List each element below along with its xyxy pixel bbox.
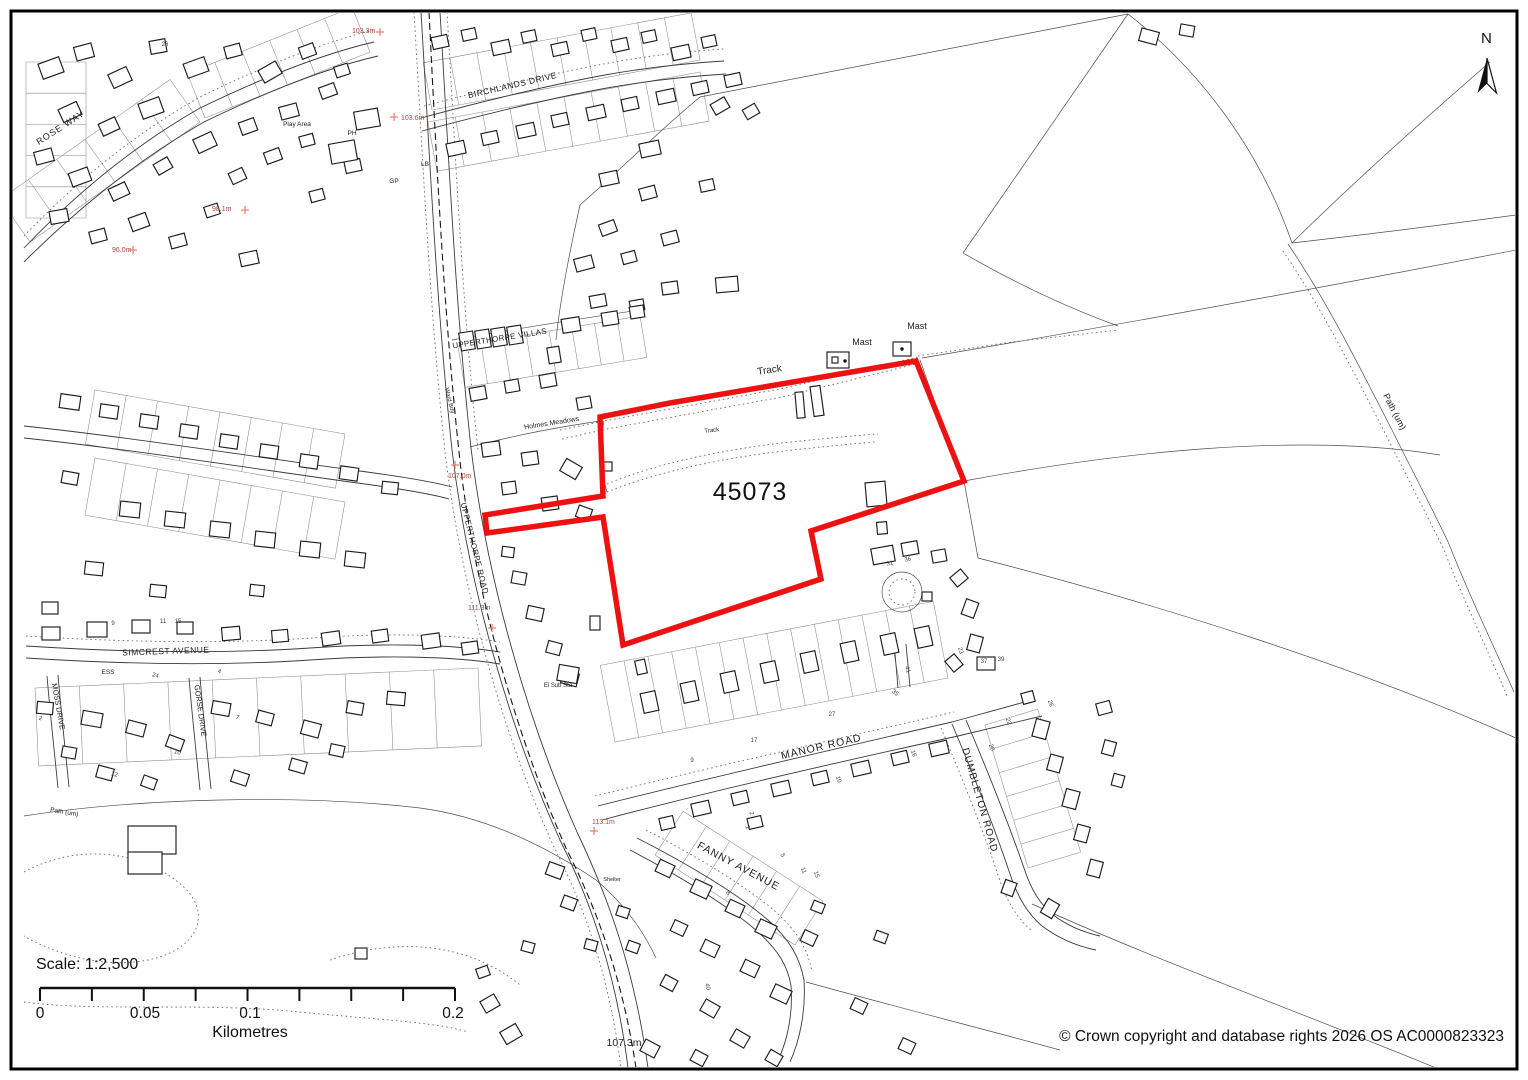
scale-tick-label: 0.05 xyxy=(130,1005,160,1022)
building-footprint xyxy=(321,631,341,646)
building-footprint xyxy=(901,541,919,557)
building-footprint xyxy=(42,627,60,640)
building-footprint xyxy=(1021,691,1035,705)
building-footprint xyxy=(547,346,561,364)
building-footprint xyxy=(931,549,947,563)
building-footprint xyxy=(557,664,579,683)
building-footprint xyxy=(84,561,103,576)
building-footprint xyxy=(876,522,887,535)
building-footprint xyxy=(511,571,527,585)
spot-height-label: 98.1m xyxy=(212,206,232,213)
building-footprint xyxy=(659,816,675,831)
house-number: 11 xyxy=(160,619,167,625)
house-number: 37 xyxy=(981,659,988,665)
building-footprint xyxy=(701,35,717,49)
building-footprint xyxy=(699,179,715,193)
scale-tick-label: 0 xyxy=(36,1005,45,1022)
building-footprint xyxy=(551,112,569,127)
building-footprint xyxy=(551,41,569,56)
spot-height-label: 96.0m xyxy=(112,247,132,254)
building-footprint xyxy=(381,481,398,495)
building-footprint xyxy=(328,140,357,164)
building-footprint xyxy=(346,701,364,716)
building-footprint xyxy=(149,584,166,598)
building-footprint xyxy=(795,392,805,419)
building-footprint xyxy=(61,746,77,759)
building-footprint xyxy=(501,546,514,558)
building-footprint xyxy=(99,404,119,419)
building-footprint xyxy=(576,396,592,410)
scale-tick-label: 0.1 xyxy=(239,1005,261,1022)
building-footprint xyxy=(1111,773,1125,787)
building-footprint xyxy=(521,30,537,44)
street-label: ESS xyxy=(101,669,115,676)
scale-tick-label: 0.2 xyxy=(442,1005,464,1022)
building-footprint xyxy=(526,605,544,621)
building-footprint xyxy=(715,276,738,293)
building-footprint xyxy=(371,629,389,643)
map-geometry xyxy=(832,357,838,363)
house-number: 17 xyxy=(751,738,758,744)
building-footprint xyxy=(119,501,140,518)
building-footprint xyxy=(922,592,932,601)
building-footprint xyxy=(421,633,441,649)
building-footprint xyxy=(386,691,405,706)
building-footprint xyxy=(865,481,887,507)
mast-symbol xyxy=(900,347,903,350)
building-footprint xyxy=(355,948,367,959)
spot-height-label: 103.3m xyxy=(352,28,376,35)
building-footprint xyxy=(469,386,487,402)
building-footprint xyxy=(504,379,520,393)
north-label: N xyxy=(1481,30,1492,47)
building-footprint xyxy=(461,28,477,42)
street-label: PH xyxy=(347,130,356,137)
building-footprint xyxy=(211,701,231,717)
building-footprint xyxy=(724,72,742,87)
building-footprint xyxy=(219,434,239,449)
building-footprint xyxy=(1179,24,1195,37)
scale-title: Scale: 1:2,500 xyxy=(36,956,138,974)
building-footprint xyxy=(249,584,264,596)
map-sheet: MastMast45073ROSE WAYBIRCHLANDS DRIVEUPP… xyxy=(0,0,1528,1080)
building-footprint xyxy=(481,441,501,457)
building-footprint xyxy=(221,626,240,641)
building-footprint xyxy=(611,37,629,52)
building-footprint xyxy=(539,373,557,389)
building-footprint xyxy=(87,622,107,637)
street-label: El Sub Sta xyxy=(544,683,573,689)
building-footprint xyxy=(521,451,539,466)
building-footprint xyxy=(601,311,619,326)
spot-height-label: 111.3m xyxy=(468,605,490,612)
spot-height-label: 107.0m xyxy=(448,473,472,480)
building-footprint xyxy=(209,521,230,538)
building-footprint xyxy=(139,414,159,429)
building-footprint xyxy=(691,80,709,95)
building-footprint xyxy=(629,305,645,319)
scale-units-label: Kilometres xyxy=(170,1024,330,1042)
building-footprint xyxy=(641,30,657,44)
mast-symbol xyxy=(843,359,846,362)
copyright-notice: © Crown copyright and database rights 20… xyxy=(1059,1028,1504,1046)
building-footprint xyxy=(128,852,162,874)
building-footprint xyxy=(635,659,648,675)
building-footprint xyxy=(49,209,69,225)
building-footprint xyxy=(132,620,150,633)
street-label: Shelter xyxy=(603,877,621,883)
spot-height-label: 103.6m xyxy=(401,115,425,122)
map-canvas: MastMast45073ROSE WAYBIRCHLANDS DRIVEUPP… xyxy=(0,0,1528,1080)
building-footprint xyxy=(621,96,639,111)
spot-height-label: 113.1m xyxy=(592,819,615,826)
mast-label: Mast xyxy=(852,337,872,347)
building-footprint xyxy=(179,424,199,439)
building-footprint xyxy=(589,294,607,309)
building-footprint xyxy=(329,744,345,758)
building-footprint xyxy=(254,531,275,548)
building-footprint xyxy=(461,641,479,655)
building-footprint xyxy=(581,28,597,42)
house-number: 39 xyxy=(998,657,1005,663)
building-footprint xyxy=(481,130,499,145)
building-footprint xyxy=(61,471,79,486)
building-footprint xyxy=(59,394,81,411)
building-footprint xyxy=(299,541,320,558)
building-footprint xyxy=(354,108,381,130)
house-number: 27 xyxy=(829,712,836,718)
building-footprint xyxy=(561,317,581,334)
building-footprint xyxy=(259,444,279,459)
house-number: 26 xyxy=(162,42,169,48)
building-footprint xyxy=(590,616,600,630)
building-footprint xyxy=(128,826,176,854)
building-footprint xyxy=(339,466,359,481)
street-label: 107.3m xyxy=(606,1037,641,1049)
building-footprint xyxy=(299,454,319,469)
street-label: LB xyxy=(421,161,429,168)
building-footprint xyxy=(344,551,365,568)
house-number: 15 xyxy=(175,619,182,625)
street-label: GP xyxy=(389,178,398,185)
mast-label: Mast xyxy=(907,321,927,331)
building-footprint xyxy=(501,481,517,495)
building-footprint xyxy=(272,629,289,642)
building-footprint xyxy=(661,281,679,295)
site-ref-label: 45073 xyxy=(713,478,788,506)
building-footprint xyxy=(37,701,54,714)
building-footprint xyxy=(42,602,58,614)
building-footprint xyxy=(81,710,103,727)
street-label: Play Area xyxy=(283,121,311,128)
building-footprint xyxy=(431,34,449,49)
building-footprint xyxy=(164,511,185,528)
